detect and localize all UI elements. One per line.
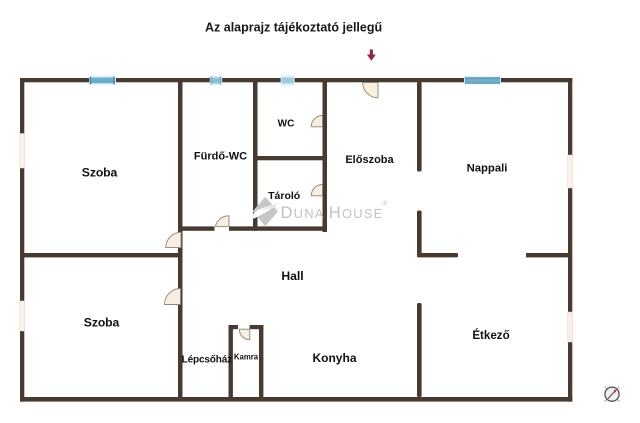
svg-text:®: ® <box>383 200 388 208</box>
svg-text:Kamra: Kamra <box>234 353 259 362</box>
svg-text:Szoba: Szoba <box>82 165 118 179</box>
svg-text:Fürdő-WC: Fürdő-WC <box>194 151 247 163</box>
svg-text:DUNA HOUSE: DUNA HOUSE <box>281 204 384 222</box>
svg-text:Az alaprajz tájékoztató jelleg: Az alaprajz tájékoztató jellegű <box>205 21 382 35</box>
svg-text:Lépcsőház: Lépcsőház <box>182 354 232 365</box>
svg-text:WC: WC <box>278 119 295 130</box>
svg-text:Nappali: Nappali <box>467 162 508 174</box>
svg-text:Tároló: Tároló <box>268 190 300 202</box>
svg-text:Előszoba: Előszoba <box>345 154 394 166</box>
svg-text:Hall: Hall <box>281 269 303 283</box>
svg-text:Szoba: Szoba <box>84 316 120 330</box>
svg-text:Konyha: Konyha <box>312 351 356 365</box>
svg-text:Étkező: Étkező <box>472 329 509 342</box>
